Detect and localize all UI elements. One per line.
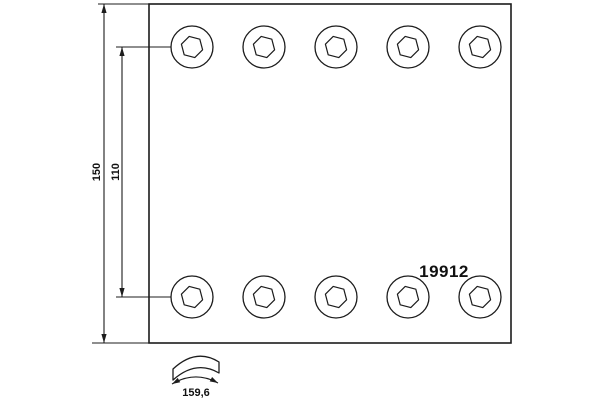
hole-row-bottom (171, 276, 501, 318)
lining-profile-section (173, 356, 219, 380)
rivet-hole (387, 276, 429, 318)
brake-lining-diagram: 150 110 19912 159,6 (0, 0, 600, 400)
dimension-label-hole-spacing: 110 (110, 163, 122, 181)
rivet-hole (243, 276, 285, 318)
rivet-hole (315, 276, 357, 318)
dimension-label-arc-width: 159,6 (182, 387, 210, 399)
dimension-arc-width: 159,6 (172, 377, 218, 399)
dimension-150: 150 (91, 4, 107, 343)
rivet-hole (315, 26, 357, 68)
arrow-up-icon (119, 47, 124, 56)
arrow-up-icon (101, 4, 106, 13)
rivet-hole (459, 276, 501, 318)
part-number-label: 19912 (419, 262, 469, 281)
hole-row-top (171, 26, 501, 68)
dimension-110: 110 (110, 47, 125, 297)
rivet-hole (171, 26, 213, 68)
rivet-hole (387, 26, 429, 68)
arrow-down-icon (101, 334, 106, 343)
rivet-hole (243, 26, 285, 68)
arrow-right-icon (210, 377, 218, 383)
dimension-label-total-height: 150 (91, 163, 103, 181)
rivet-hole (171, 276, 213, 318)
rivet-hole (459, 26, 501, 68)
arrow-down-icon (119, 288, 124, 297)
technical-drawing-canvas: 150 110 19912 159,6 (0, 0, 600, 400)
